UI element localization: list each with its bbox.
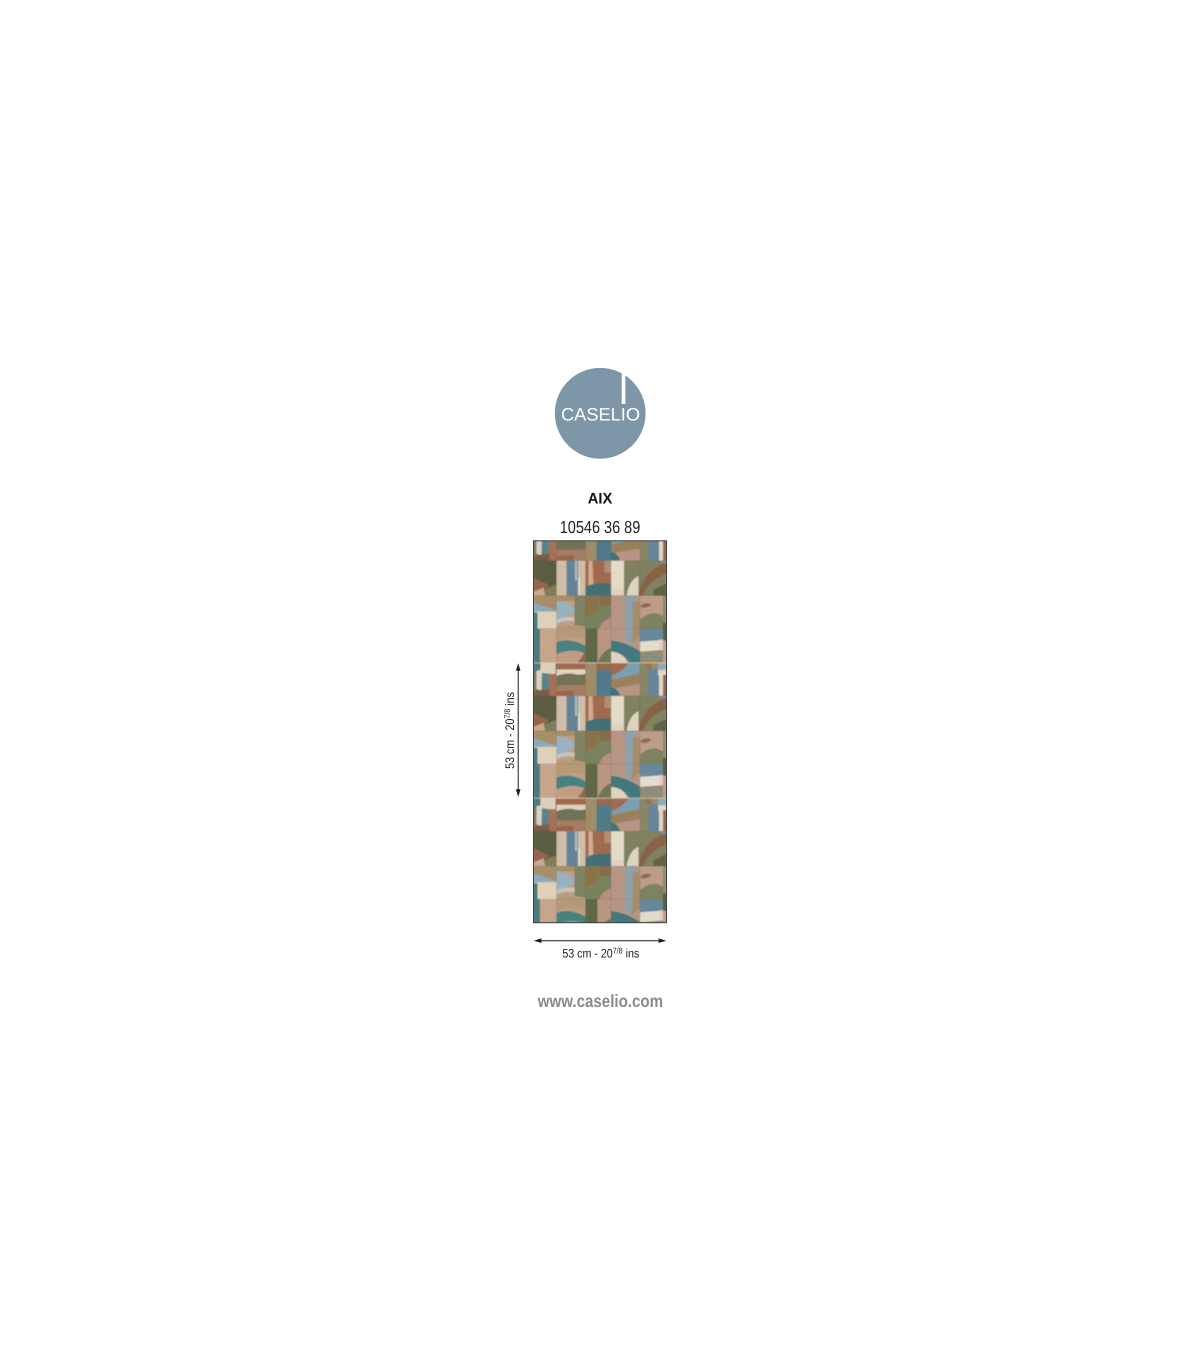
svg-text:CASELIO: CASELIO (561, 405, 640, 425)
svg-text:www.caselio.com: www.caselio.com (537, 991, 663, 1011)
svg-text:53 cm - 207/8 ins: 53 cm - 207/8 ins (562, 946, 639, 961)
svg-text:AIX: AIX (588, 490, 613, 507)
svg-text:53 cm - 207/8 ins: 53 cm - 207/8 ins (502, 692, 517, 769)
svg-text:10546 36 89: 10546 36 89 (560, 517, 641, 537)
